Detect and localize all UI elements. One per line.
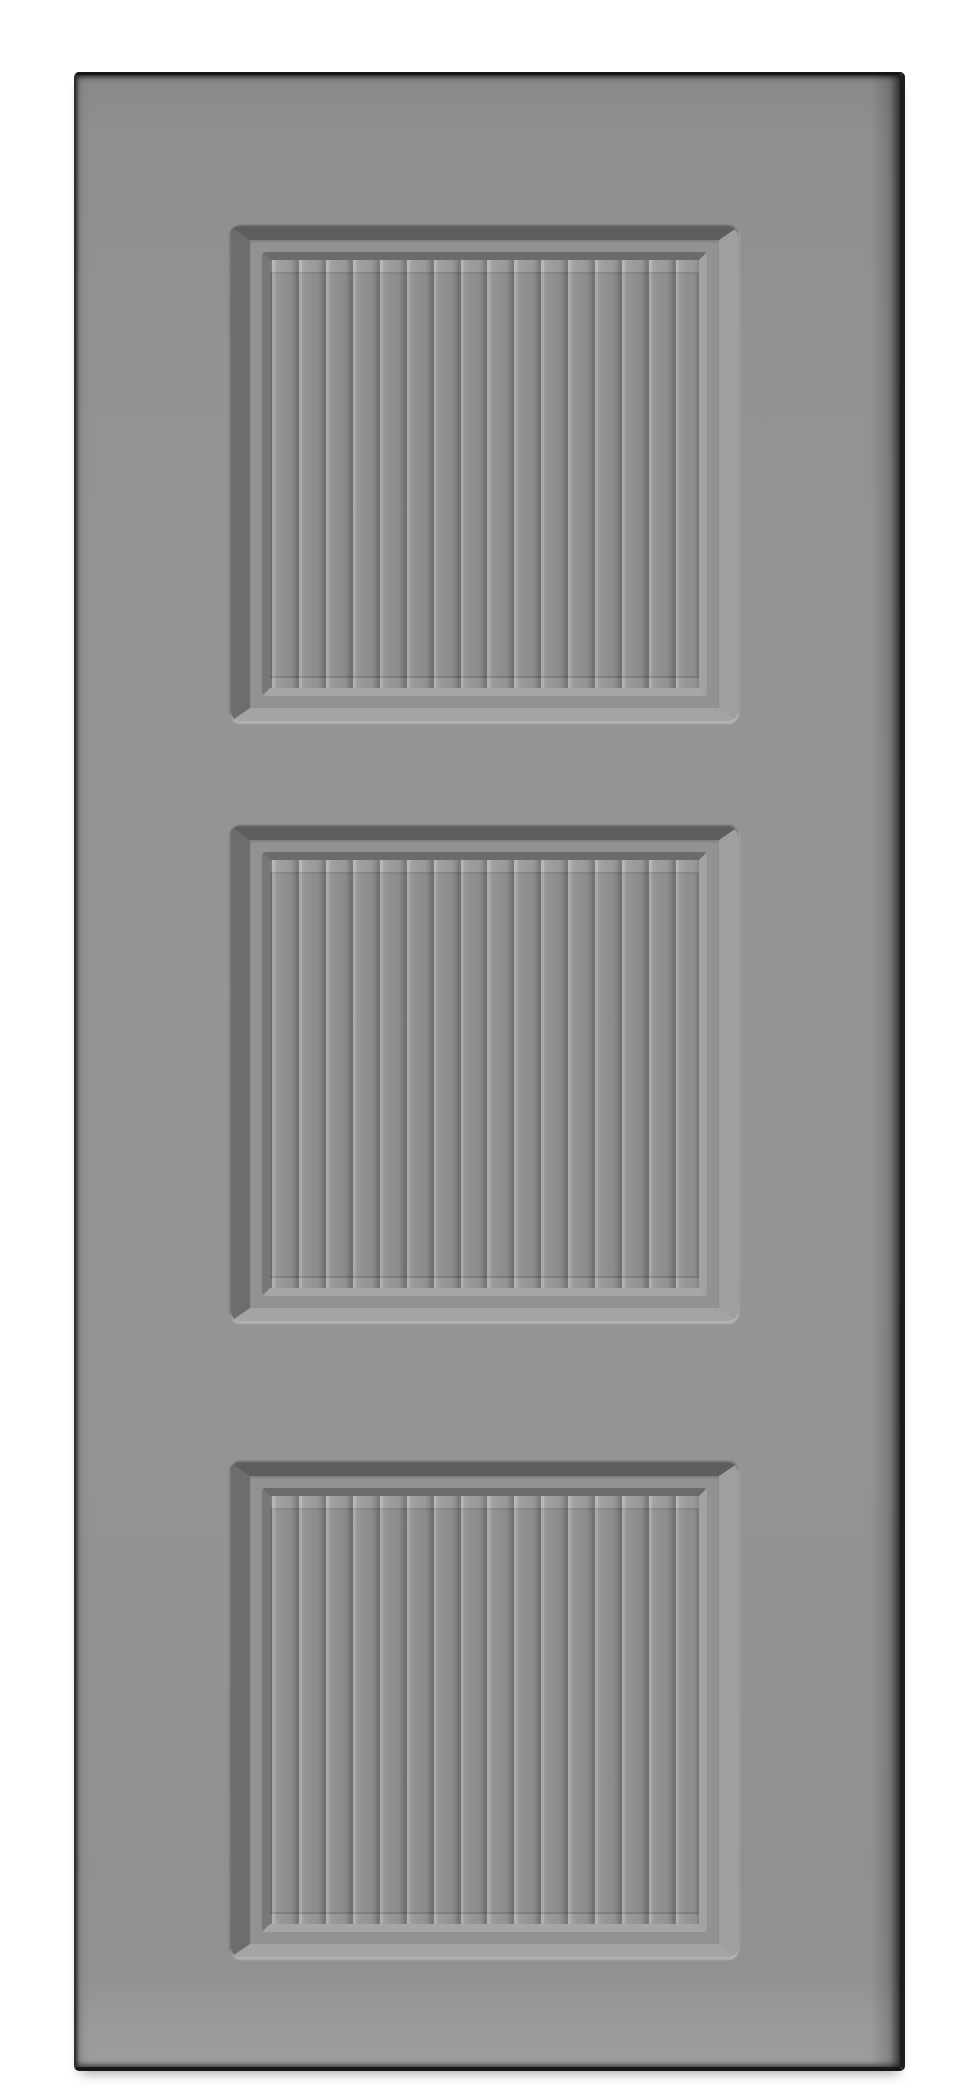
beadboard-slats-middle <box>270 860 699 1288</box>
panel-frame-middle <box>262 852 707 1296</box>
beadboard-slats-top <box>270 260 699 688</box>
photo-caption: Gray painted three-panel interior door, … <box>75 74 76 75</box>
beadboard-slats-bottom <box>270 1496 699 1924</box>
photo-canvas: Gray painted three-panel interior door, … <box>0 0 980 2100</box>
door-panel-top <box>231 227 738 721</box>
panel-frame-top <box>262 252 707 696</box>
door: Gray painted three-panel interior door, … <box>74 72 905 2071</box>
door-panel-middle <box>231 827 738 1321</box>
door-panel-bottom <box>231 1463 738 1957</box>
panel-frame-bottom <box>262 1488 707 1932</box>
